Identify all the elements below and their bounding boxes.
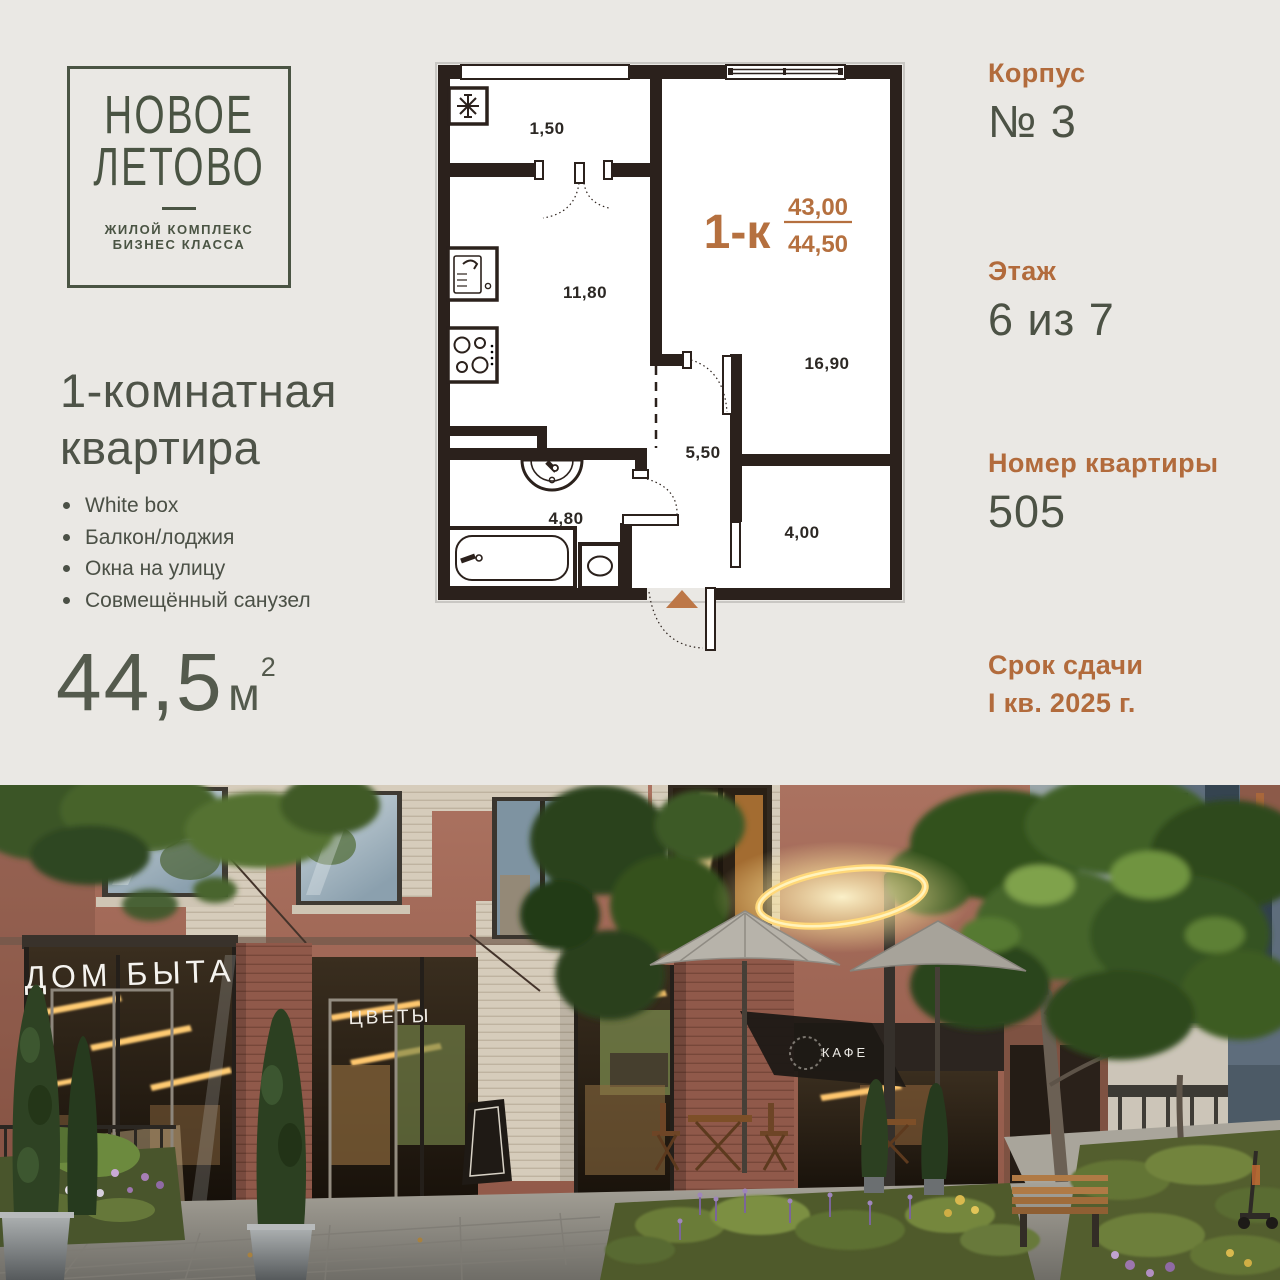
flower-bed-right [1060, 1130, 1280, 1280]
shop-sign-cafe: КАФЕ [822, 1045, 868, 1060]
apartment-number-value: 505 [988, 486, 1066, 538]
wardrobe-door [731, 522, 740, 567]
apartment-type: 1-к [704, 206, 772, 259]
floor-plan: 1,50 11,80 16,90 5,50 4,80 4,00 1-к 43,0… [435, 60, 905, 665]
deadline-label: Срок сдачи [988, 646, 1143, 684]
logo-title-line2: ЛЕТОВО [93, 141, 265, 193]
street-photo: ДОМ БЫТА ЦВЕТЫ [0, 785, 1280, 1280]
feature-list: White box Балкон/лоджия Окна на улицу Со… [63, 490, 311, 616]
balcony-glazing [461, 65, 629, 79]
feature-item: Совмещённый санузел [63, 585, 311, 617]
feature-item: White box [63, 490, 311, 522]
page-title: 1-комнатная квартира [60, 362, 337, 476]
entrance-door [647, 588, 715, 650]
kitchen-sink-icon [448, 248, 497, 300]
bullet-icon [63, 502, 70, 509]
logo-subtitle: ЖИЛОЙ КОМПЛЕКС БИЗНЕС КЛАССА [105, 222, 254, 252]
building-label: Корпус [988, 58, 1086, 89]
wall-bathroom [450, 448, 647, 460]
room-area-kitchen: 11,80 [563, 283, 607, 302]
logo-divider [162, 207, 196, 210]
building-value: № 3 [988, 96, 1077, 148]
logo: НОВОЕ ЛЕТОВО ЖИЛОЙ КОМПЛЕКС БИЗНЕС КЛАСС… [67, 66, 291, 288]
bullet-icon [63, 565, 70, 572]
logo-title-line1: НОВОЕ [93, 89, 265, 141]
bullet-icon [63, 534, 70, 541]
living-room-window [726, 65, 845, 79]
deadline-value: I кв. 2025 г. [988, 684, 1143, 722]
shop-sign-dom-byta: ДОМ БЫТА [24, 952, 236, 995]
living-area-value: 43,00 [788, 194, 848, 221]
ac-unit-icon [449, 88, 487, 124]
room-area-bathroom: 4,80 [548, 509, 583, 528]
total-area: 44,5 м2 [56, 636, 277, 730]
floor-value: 6 из 7 [988, 294, 1115, 346]
washing-machine-icon [580, 544, 620, 588]
room-area-wardrobe: 4,00 [784, 523, 819, 542]
flyer: НОВОЕ ЛЕТОВО ЖИЛОЙ КОМПЛЕКС БИЗНЕС КЛАСС… [0, 0, 1280, 1280]
apartment-number-label: Номер квартиры [988, 448, 1219, 479]
logo-title: НОВОЕ ЛЕТОВО [93, 89, 265, 193]
feature-item: Окна на улицу [63, 553, 311, 585]
room-area-balcony: 1,50 [529, 119, 564, 138]
stove-icon [448, 328, 497, 382]
bullet-icon [63, 597, 70, 604]
total-area-value: 44,50 [788, 231, 848, 258]
wall-kitchen-living [650, 79, 662, 366]
floor-label: Этаж [988, 256, 1056, 287]
room-area-hall: 5,50 [685, 443, 720, 462]
deadline: Срок сдачи I кв. 2025 г. [988, 646, 1143, 722]
menu-board [462, 1099, 512, 1185]
feature-item: Балкон/лоджия [63, 522, 311, 554]
bathtub-icon [448, 528, 575, 588]
wall-living-wardrobe [742, 454, 890, 466]
shop-sign-tsvety: ЦВЕТЫ [348, 1006, 431, 1029]
room-area-living: 16,90 [804, 354, 849, 373]
